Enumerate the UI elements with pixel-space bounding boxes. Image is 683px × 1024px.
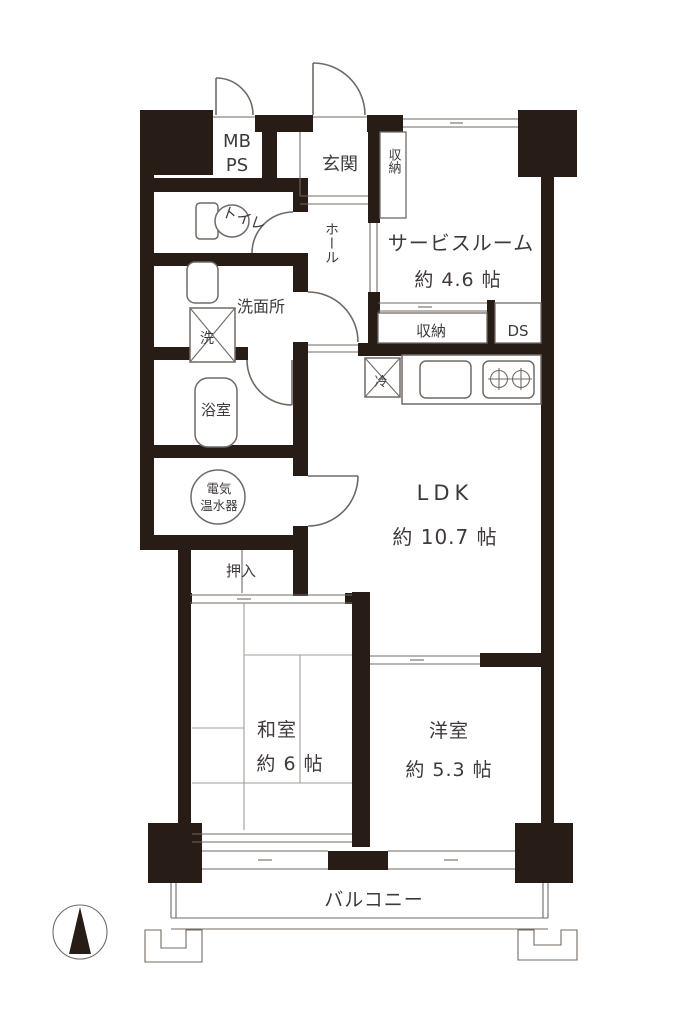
label-ps: PS — [226, 155, 248, 176]
label-water-heater-2: 温水器 — [200, 498, 238, 513]
washroom-door — [308, 292, 358, 342]
label-ldk: LDK — [417, 481, 474, 505]
label-hall: ホール — [323, 222, 339, 264]
bathroom-door — [247, 360, 292, 405]
label-mb: MB — [223, 131, 251, 152]
label-service-room-size: 約 4.6 帖 — [414, 269, 501, 291]
label-ds: DS — [507, 322, 528, 340]
label-washer: 洗 — [200, 331, 214, 347]
balcony-partition-left — [145, 930, 202, 962]
stove-icon — [483, 361, 534, 398]
label-water-heater-1: 電気 — [206, 481, 231, 496]
label-bathroom: 浴室 — [201, 401, 231, 419]
water-heater-room-door — [308, 476, 358, 526]
label-oshiire: 押入 — [226, 562, 256, 580]
washbasin-icon — [187, 262, 218, 303]
kitchen-sink-icon — [420, 361, 471, 398]
floor-plan: MB PS 玄関 収納 トイレ ホール サービスルーム 約 4.6 帖 収納 D… — [0, 0, 683, 1024]
pillar-bottom-left — [148, 823, 202, 883]
label-balcony: バルコニー — [324, 889, 424, 911]
label-entrance-closet: 収納 — [386, 148, 402, 175]
label-washitsu-size: 約 6 帖 — [256, 753, 323, 775]
label-fridge: 冷 — [374, 375, 387, 390]
kitchen-counter — [402, 355, 541, 404]
pillar-top-left — [150, 110, 213, 175]
label-service-room: サービスルーム — [388, 231, 534, 255]
compass-icon — [53, 905, 107, 959]
entrance-closet-box — [380, 132, 406, 218]
label-youshitsu: 洋室 — [429, 720, 469, 742]
water-heater-icon — [191, 470, 245, 524]
label-washitsu: 和室 — [257, 719, 297, 741]
floor-plan-canvas: MB PS 玄関 収納 トイレ ホール サービスルーム 約 4.6 帖 収納 D… — [0, 0, 683, 1024]
pillar-top-right — [518, 110, 577, 177]
entrance-door — [313, 63, 365, 115]
label-washroom: 洗面所 — [237, 297, 285, 316]
tatami-lines — [192, 603, 352, 830]
label-ldk-size: 約 10.7 帖 — [392, 525, 497, 549]
label-service-closet: 収納 — [416, 322, 446, 340]
mbps-door — [216, 78, 253, 115]
label-genkan: 玄関 — [322, 154, 358, 175]
balcony-partition-right — [518, 930, 577, 960]
pillar-bottom-right — [515, 823, 573, 883]
label-youshitsu-size: 約 5.3 帖 — [405, 759, 492, 781]
